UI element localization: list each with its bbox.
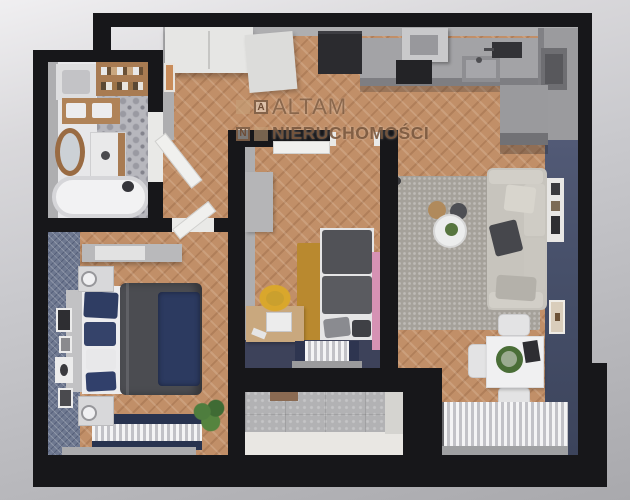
dining-radiator-sill [442, 446, 568, 455]
vanity-tray [66, 103, 86, 118]
laptop [266, 312, 292, 332]
kitchen-sink [462, 56, 500, 82]
coffee-table [433, 214, 467, 248]
wall-right-lower [578, 363, 607, 487]
middle-room-cabinet [245, 172, 273, 232]
wall-right-upper [578, 13, 592, 365]
wall-divider-column [228, 130, 245, 455]
middle-radiator-sill [292, 361, 362, 368]
chair-seat [266, 291, 284, 306]
logo-square-beige-1 [236, 100, 250, 114]
shelf-items [101, 67, 143, 75]
dining-plant-pot [501, 351, 517, 367]
dining-chair-top [498, 314, 530, 336]
middle-bed-pillow [323, 316, 351, 338]
middle-radiator-flank-right [349, 341, 359, 363]
gallery-frame-2 [59, 336, 72, 353]
table-books [522, 340, 540, 363]
bedroom-radiator [92, 424, 202, 441]
cooktop [396, 60, 432, 84]
gallery-frame-1 [56, 308, 72, 332]
sofa-blanket [495, 275, 537, 302]
balcony-side-wall [385, 392, 403, 434]
wall-middle-room-right [380, 130, 398, 392]
bathroom-sink-cabinet [90, 132, 126, 180]
coffee-machine-top [410, 35, 438, 55]
nightstand-lamp-2 [81, 405, 97, 421]
bedroom-dresser [82, 244, 182, 262]
oven-door [545, 54, 563, 84]
picture-motif [555, 313, 560, 321]
wall-top [95, 13, 592, 27]
wall-bathroom-top [33, 50, 157, 62]
middle-radiator-flank-left [295, 341, 305, 363]
hall-wall-picture [164, 63, 175, 92]
frame-oval-motif [60, 364, 68, 376]
washing-machine-drum [62, 70, 90, 94]
dresser-white-section [95, 246, 145, 260]
bathroom-vanity-shelf [62, 98, 120, 124]
watermark: A ALTAM N NIERUCHOMOŚCI [236, 94, 429, 144]
watermark-row-1: A ALTAM [236, 94, 429, 120]
bathtub-faucet [122, 181, 134, 192]
wall-bottom [33, 455, 607, 487]
kitchen-island-cabinet [500, 85, 548, 145]
bed-duvet [120, 283, 202, 395]
nightstand-top [78, 266, 114, 292]
sofa-pillow-beige [504, 184, 537, 213]
wall-art-shelf [547, 178, 564, 242]
bed-pillow-navy-1 [83, 291, 118, 319]
shelf-items-2 [101, 82, 143, 90]
logo-letter-n: N [236, 127, 250, 141]
cabinet-wood-edge [118, 133, 125, 177]
art-print-2 [551, 201, 560, 211]
sofa [487, 168, 547, 310]
balcony-wall-tiles [245, 390, 403, 432]
bedroom-window-sill [62, 447, 196, 455]
vanity-tray-2 [92, 103, 112, 118]
bathtub [52, 176, 149, 218]
balcony-doormat [270, 392, 298, 401]
yellow-desk-chair [256, 282, 294, 314]
balcony-floor [245, 432, 403, 455]
bedroom-plant [192, 398, 226, 432]
kitchen-counter-run [360, 38, 560, 86]
watermark-row-2: N NIERUCHOMOŚCI [236, 123, 429, 144]
middle-bed-duvet [322, 230, 372, 274]
pan-handle [484, 48, 494, 51]
bed-pillow-white [86, 349, 116, 370]
coffee-table-plant [445, 223, 458, 236]
wardrobe-door-seam [208, 31, 210, 69]
logo-letter-a: A [254, 100, 268, 114]
sofa-pillow-dark [489, 219, 524, 257]
hob-with-pan [492, 42, 522, 58]
bathroom-shelf-unit [96, 62, 148, 96]
sink-faucet [101, 151, 110, 160]
nightstand-bottom [78, 396, 114, 426]
washing-machine [56, 64, 96, 100]
pink-wall-panel [372, 252, 380, 350]
fridge [318, 31, 362, 74]
duvet-fold [126, 283, 129, 395]
gallery-frame-3 [55, 357, 73, 383]
gallery-frame-4 [58, 388, 73, 408]
kitchen-faucet [476, 57, 482, 63]
island-shadow [500, 145, 548, 154]
middle-radiator [305, 341, 349, 363]
logo-square-beige-2 [254, 127, 268, 141]
dining-table [486, 336, 544, 388]
bed-navy-runner [158, 292, 200, 386]
wall-left [33, 50, 48, 487]
desk-phone [251, 328, 267, 340]
nightstand-lamp [81, 271, 97, 287]
hall-wardrobe [165, 27, 253, 73]
bathroom-round-mirror [55, 128, 85, 176]
hall-tall-cabinet [245, 31, 298, 93]
art-print [551, 183, 560, 195]
dining-wall-picture [549, 300, 565, 334]
middle-bed-pillow-dark [352, 320, 371, 337]
floor-plan-render: A ALTAM N NIERUCHOMOŚCI [0, 0, 630, 500]
coffee-machine [402, 28, 448, 62]
art-print-3 [551, 216, 560, 234]
middle-bed-duvet-2 [322, 276, 372, 314]
sink-basin [466, 60, 496, 78]
island-front [500, 133, 548, 145]
dining-radiator [438, 402, 568, 446]
watermark-brand-line1: ALTAM [272, 94, 347, 120]
built-in-oven [541, 48, 567, 90]
middle-room-bed [320, 228, 374, 340]
wall-dining-nook-left [403, 368, 442, 455]
bed-pillow-navy-3 [86, 371, 117, 392]
watermark-brand-line2: NIERUCHOMOŚCI [272, 123, 429, 144]
bed-pillow-navy-2 [84, 322, 116, 346]
sofa-armrest-top [489, 170, 543, 184]
